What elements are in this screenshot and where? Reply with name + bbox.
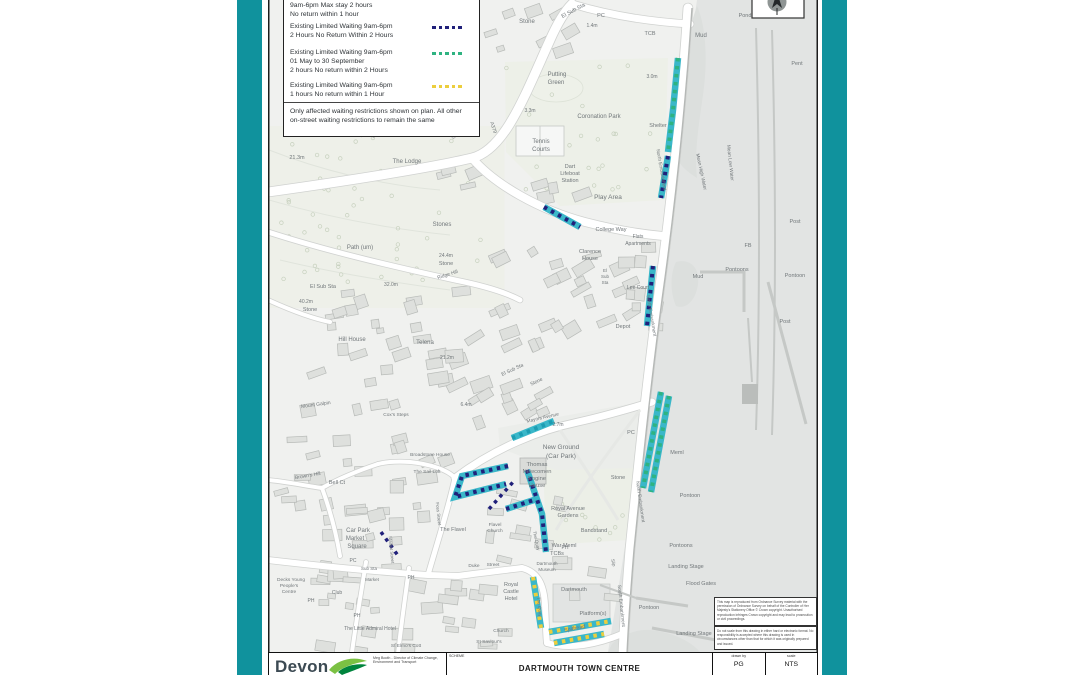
legend-entry-line: 01 May to 30 September: [290, 58, 364, 65]
map-label: Church: [487, 528, 503, 534]
map-label: 32.0m: [384, 282, 398, 288]
drawn-by-label: drawn by: [713, 654, 765, 658]
map-label: PH: [408, 575, 415, 581]
map-label: Engine: [528, 476, 546, 482]
map-label: Stones: [433, 222, 452, 228]
map-label: New Ground: [543, 444, 580, 451]
map-label: The Flavel: [440, 527, 466, 533]
map-label: Church: [493, 628, 509, 634]
legend-entry-line: Existing Limited Waiting 9am-6pm: [290, 23, 393, 30]
legend-swatch-navy: [432, 26, 462, 30]
map-label: People's: [280, 583, 299, 589]
map-label: Mud: [695, 33, 707, 39]
map-label: Car Park: [346, 528, 371, 534]
map-label: Pontoons: [669, 543, 692, 549]
map-label: Broadstone House: [410, 452, 450, 458]
devon-leaf-icon: [327, 655, 369, 675]
map-label: Sub: [601, 274, 610, 279]
north-arrow-icon: [752, 0, 804, 18]
disclaimer-note: Do not scale from this drawing in either…: [714, 626, 817, 650]
map-label: 40.2m: [299, 299, 313, 305]
map-label: Path (um): [347, 245, 373, 251]
map-label: House: [529, 483, 546, 489]
logo-cell: Devon Meg Booth - Director of Climate Ch…: [269, 653, 447, 675]
scale-value: NTS: [766, 661, 818, 668]
map-label: Cox's Steps: [383, 412, 409, 418]
map-label: El: [603, 268, 607, 273]
map-label: 3.0m: [646, 74, 657, 80]
map-label: Depot: [616, 324, 631, 330]
map-label: TCBs: [550, 551, 564, 557]
legend-entry-line: 1 hours No return within 1 Hour: [290, 91, 384, 98]
map-label: Dartmouth: [561, 587, 587, 593]
map-label: TCB: [645, 31, 656, 37]
map-label: (Car Park): [546, 453, 576, 460]
org-address: Meg Booth - Director of Climate Change,E…: [373, 656, 438, 666]
map-label: Bandstand: [581, 528, 607, 534]
map-label: Hill House: [338, 337, 366, 343]
map-label: Landing Stage: [668, 564, 703, 570]
map-label: Market: [346, 536, 365, 542]
map-label: Duke: [468, 563, 480, 569]
map-label: PH: [562, 545, 569, 551]
map-label: Market: [365, 577, 380, 582]
map-label: Stone: [303, 307, 317, 313]
map-label: Decks Young: [277, 577, 305, 583]
map-label: 6.4m: [460, 402, 471, 408]
map-label: Flats: [633, 234, 644, 240]
legend-box: 9am-6pm Max stay 2 hoursNo return within…: [283, 0, 480, 137]
map-label: Sub Sta: [361, 566, 378, 571]
map-label: Flood Gates: [686, 581, 716, 587]
map-label: Pontoon: [639, 605, 660, 611]
map-label: Clarence: [579, 249, 601, 255]
devon-logo: Devon: [275, 657, 328, 675]
scale-cell: scale NTS: [765, 653, 818, 675]
map-label: Telena: [416, 340, 434, 346]
map-label: PH: [308, 598, 315, 604]
map-label: Bell Ct: [329, 480, 346, 486]
scheme-label: SCHEME: [449, 654, 464, 658]
map-label: Lifeboat: [560, 171, 580, 177]
map-label: Gardens: [557, 513, 578, 519]
map-label: Stone: [439, 261, 453, 267]
map-label: Shelter: [649, 123, 667, 129]
map-label: Pent: [791, 61, 803, 67]
map-label: The Little Admiral Hotel: [344, 626, 396, 632]
map-label: Pontoons: [725, 267, 748, 273]
legend-divider: [284, 102, 479, 103]
map-label: Castle: [503, 589, 519, 595]
map-label: Platform(s): [580, 611, 607, 617]
map-label: Thomas: [527, 462, 548, 468]
map-label: Lee Court: [627, 285, 650, 291]
map-label: Centre: [282, 589, 297, 595]
legend-entry-line: 2 Hours No Return Within 2 Hours: [290, 32, 393, 39]
map-label: Royal: [504, 582, 518, 588]
map-label: Meml: [670, 450, 683, 456]
map-label: College Way: [596, 227, 627, 233]
map-label: PC: [597, 13, 605, 19]
map-label: Post: [789, 219, 800, 225]
map-label: Club: [332, 590, 343, 596]
map-label: Dartmouth: [536, 561, 558, 566]
scheme-title: DARTMOUTH TOWN CENTRE: [447, 653, 712, 675]
map-label: PC: [627, 430, 635, 436]
map-label: 3.3m: [524, 108, 535, 114]
copyright-note: This map is reproduced from Ordnance Sur…: [714, 597, 817, 626]
map-label: 21.2m: [440, 355, 454, 361]
map-label: House: [582, 256, 598, 262]
map-label: Flavel: [489, 522, 502, 528]
map-label: 1.4m: [586, 23, 597, 29]
map-label: Post: [779, 319, 790, 325]
title-block: Devon Meg Booth - Director of Climate Ch…: [268, 652, 818, 675]
legend-entry-line: 2 hours No return within 2 Hours: [290, 67, 388, 74]
map-label: Pond: [739, 13, 752, 19]
drawn-by-cell: drawn by PG: [713, 653, 765, 675]
map-label: The Sail Loft: [414, 469, 442, 475]
map-label: Royal Avenue: [551, 506, 585, 512]
drawing-sheet-canvas: StoneEl Sub StaPC1.4mTCBMudPondPentPutti…: [0, 0, 1080, 675]
map-label: Station: [561, 178, 578, 184]
map-label: Pontoon: [680, 493, 701, 499]
map-label: Street: [487, 562, 500, 568]
map-label: Sta: [602, 280, 609, 285]
map-label: Newcomen: [523, 469, 552, 475]
map-label: Stone: [611, 475, 625, 481]
drawn-by-value: PG: [713, 661, 765, 668]
map-label: Mud: [693, 274, 704, 280]
map-label: Play Area: [594, 194, 622, 201]
map-label: Stone: [519, 19, 535, 25]
map-label: Landing Stage: [676, 631, 711, 637]
map-label: The Lodge: [393, 159, 422, 165]
map-label: Apartments: [625, 241, 651, 247]
map-label: Hotel: [505, 596, 518, 602]
scheme-cell: SCHEME DARTMOUTH TOWN CENTRE: [447, 653, 713, 675]
map-label: St Saviour's: [476, 639, 502, 645]
map-label: St Elmo's Cott: [391, 643, 422, 649]
legend-note-line: on-street waiting restrictions to remain…: [290, 117, 435, 124]
map-label: Museum: [538, 567, 556, 572]
map-label: FB: [744, 243, 751, 249]
map-label: Putting: [548, 72, 567, 78]
map-label: 24.4m: [439, 253, 453, 259]
map-label: Pontoon: [785, 273, 806, 279]
legend-entry-line: No return within 1 hour: [290, 11, 359, 18]
map-label: Tennis: [532, 139, 549, 145]
legend-swatch-green: [432, 52, 462, 56]
map-label: Coronation Park: [577, 114, 621, 120]
drawing-info-cell: drawn by PG scale NTS: [713, 653, 817, 675]
map-label: Courts: [532, 147, 550, 153]
map-label: 21.3m: [289, 155, 305, 161]
legend-swatch-yellow: [432, 85, 462, 89]
map-label: PH: [354, 613, 361, 619]
map-label: PC: [350, 558, 357, 564]
scale-label: scale: [766, 654, 818, 658]
map-label: Dart: [565, 164, 576, 170]
legend-entry-line: Existing Limited Waiting 9am-6pm: [290, 82, 393, 89]
legend-entry-line: Existing Limited Waiting 9am-6pm: [290, 49, 393, 56]
map-label: El Sub Sta: [310, 284, 337, 290]
legend-note-line: Only affected waiting restrictions shown…: [290, 108, 462, 115]
map-label: Square: [347, 544, 367, 550]
town-map: StoneEl Sub StaPC1.4mTCBMudPondPentPutti…: [0, 0, 1080, 675]
map-label: Green: [548, 80, 565, 86]
map-label: 2.7m: [552, 422, 563, 428]
legend-entry-line: 9am-6pm Max stay 2 hours: [290, 2, 372, 9]
